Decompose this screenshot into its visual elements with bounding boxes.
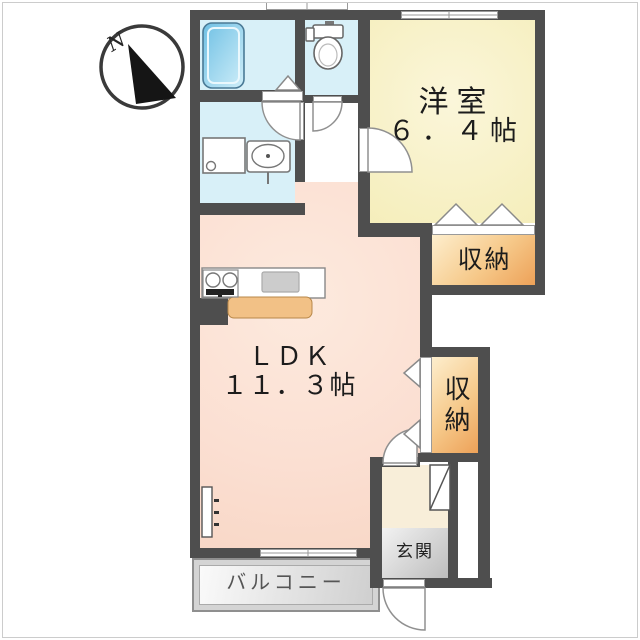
balcony-label: バルコニー bbox=[199, 571, 373, 594]
genkan-label: 玄関 bbox=[382, 543, 448, 563]
shoe-cabinet-icon bbox=[430, 465, 450, 510]
door-arc-toilet bbox=[313, 102, 342, 131]
bath-folding-door-icon bbox=[276, 76, 300, 90]
wall-fixture-icon bbox=[202, 487, 219, 537]
bifold-door-icon bbox=[435, 204, 523, 225]
closet-side-label: 収納 bbox=[440, 364, 470, 448]
fixtures-overlay: N bbox=[0, 0, 640, 640]
western-room-area: ６．４帖 bbox=[370, 116, 535, 147]
door-arc-washroom bbox=[262, 102, 300, 140]
compass-icon: N bbox=[101, 26, 183, 108]
stove-icon bbox=[203, 270, 238, 297]
ldk-label: ＬＤＫ bbox=[200, 343, 378, 373]
bifold-door-icon bbox=[404, 359, 420, 448]
closet-upper-label: 収納 bbox=[432, 246, 535, 275]
door-arc-entrance bbox=[383, 588, 425, 630]
toilet-icon bbox=[306, 21, 343, 69]
kitchen-sink-icon bbox=[262, 272, 299, 292]
washbasin-icon bbox=[247, 141, 290, 184]
bathtub-icon bbox=[203, 23, 244, 88]
floor-plan: N 洋室 ６．４帖 ＬＤＫ １１．３帖 収納 収納 玄関 バルコニー bbox=[0, 0, 640, 640]
washing-machine-icon bbox=[203, 138, 245, 173]
ldk-area: １１．３帖 bbox=[200, 372, 378, 402]
